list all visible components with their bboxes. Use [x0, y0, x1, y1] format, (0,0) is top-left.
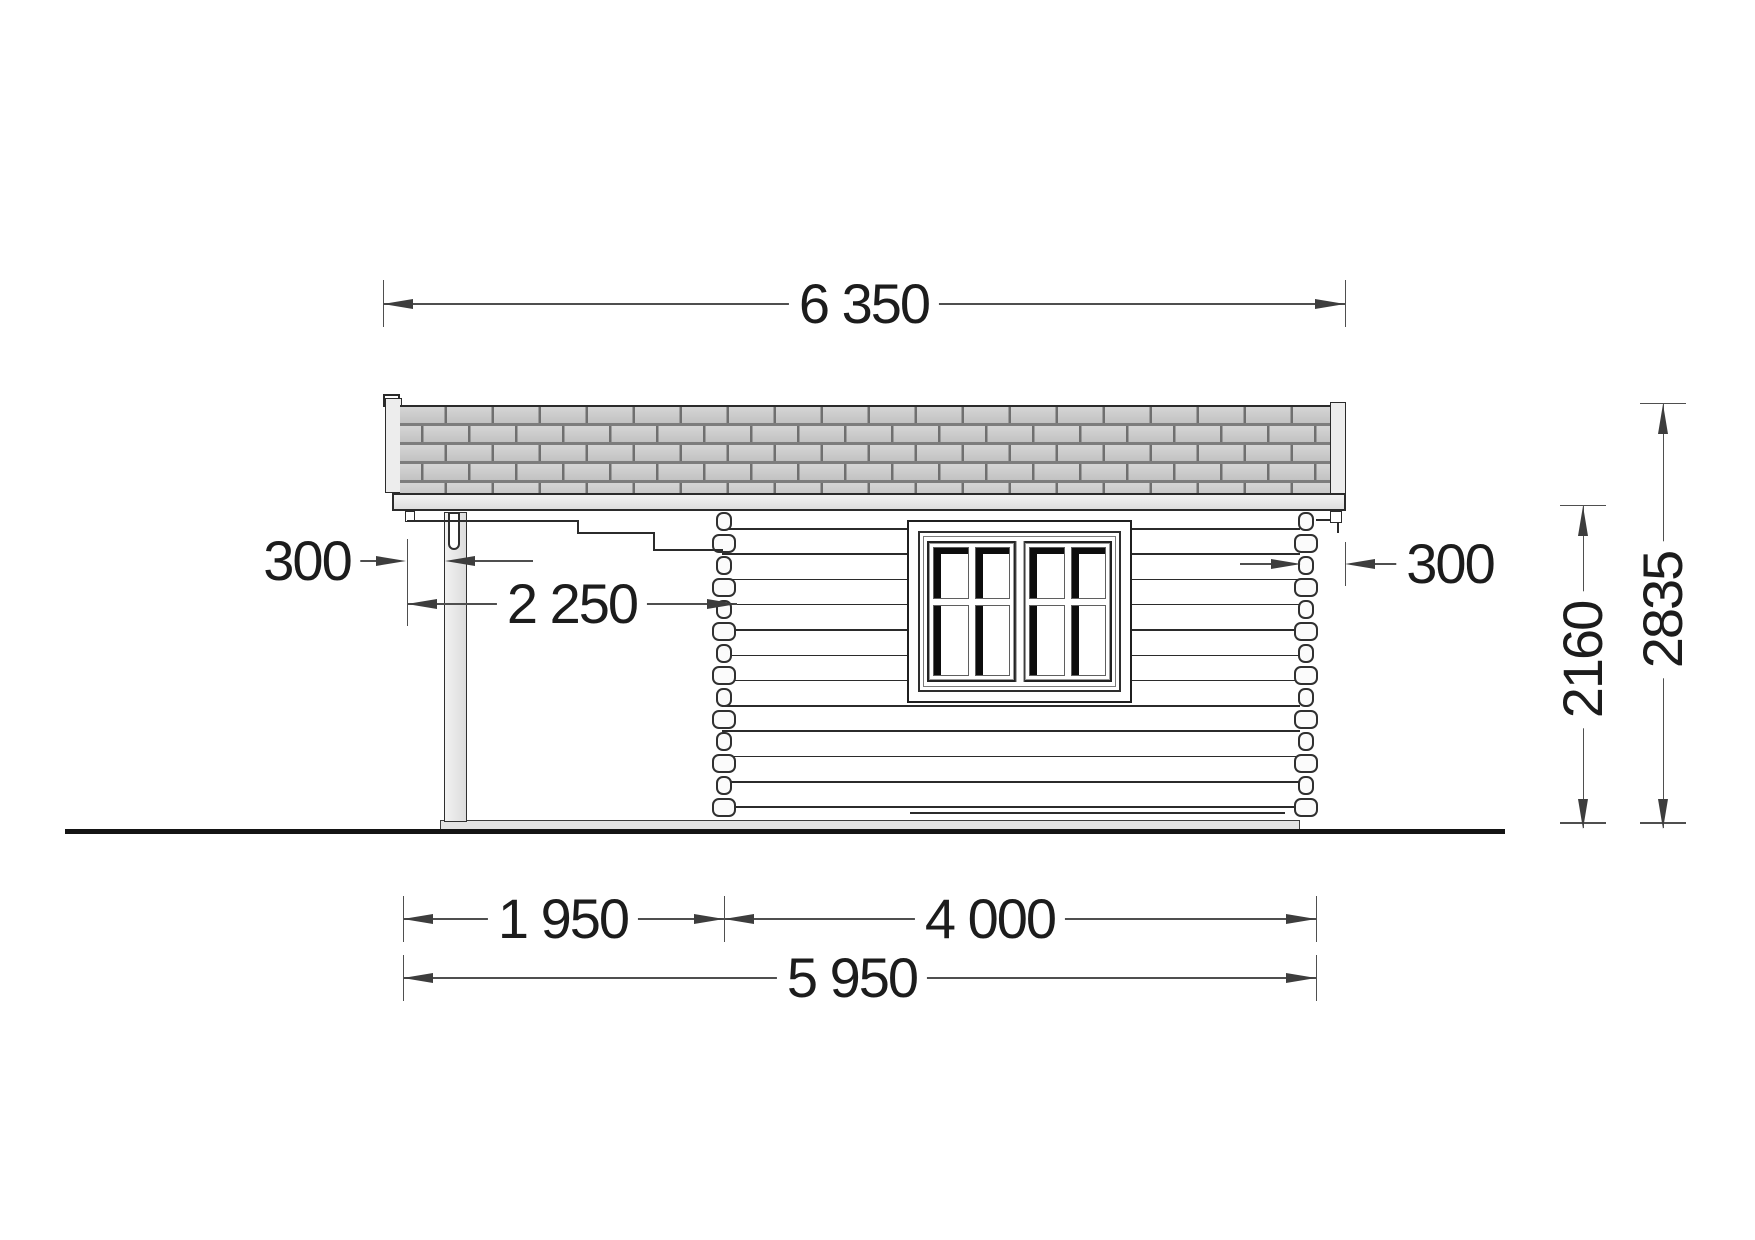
dim-label-canopy-depth: 2 250	[497, 576, 647, 632]
log-end	[716, 776, 732, 795]
log-end	[1294, 622, 1318, 641]
dim-arrow	[694, 914, 724, 924]
dim-label-wall-height: 2160	[1555, 592, 1611, 729]
siding-line	[722, 806, 1300, 808]
dim-label-terrace-width: 1 950	[488, 891, 638, 947]
log-end	[1298, 600, 1314, 619]
dim-label-overhang-left: 300	[253, 533, 360, 589]
log-end	[712, 754, 736, 773]
dim-arrow	[407, 599, 437, 609]
dim-line-overhang-right	[1240, 563, 1272, 565]
window-pane	[976, 606, 1010, 675]
shingle-row	[400, 445, 1330, 464]
siding-line	[722, 781, 1300, 783]
dim-arrow	[1286, 973, 1316, 983]
log-end	[712, 710, 736, 729]
dim-arrow	[383, 299, 413, 309]
shingle-row	[400, 407, 1330, 426]
log-end	[716, 644, 732, 663]
log-end	[1294, 666, 1318, 685]
log-end	[716, 688, 732, 707]
dim-label-total-height: 2835	[1635, 542, 1691, 679]
shingle-row	[400, 426, 1330, 445]
log-end	[1298, 688, 1314, 707]
shingle-row	[400, 483, 1330, 493]
window-pane	[934, 606, 968, 675]
log-end	[1298, 776, 1314, 795]
dim-arrow	[376, 556, 406, 566]
elevation-sheet: 6 350 300 300 2 250 1 950 4 000 5 950 21…	[0, 0, 1755, 1240]
log-end	[1294, 754, 1318, 773]
log-end	[712, 798, 736, 817]
roof-shingles	[400, 405, 1330, 493]
log-end	[1294, 534, 1318, 553]
post-anchor-bracket	[448, 512, 460, 550]
dim-arrow	[1658, 404, 1668, 434]
dim-arrow	[724, 914, 754, 924]
log-end	[712, 666, 736, 685]
log-end	[1298, 644, 1314, 663]
log-end	[716, 556, 732, 575]
log-end	[716, 512, 732, 531]
dim-label-cabin-width: 4 000	[915, 891, 1065, 947]
canopy-log-step-line	[407, 520, 579, 522]
log-end	[712, 578, 736, 597]
window-center-mullion	[1015, 541, 1024, 682]
dim-arrow	[1578, 506, 1588, 536]
window-pane	[1030, 606, 1064, 675]
window-pane	[1072, 606, 1106, 675]
window	[907, 520, 1132, 703]
dim-arrow	[1315, 299, 1345, 309]
dim-arrow	[1271, 559, 1301, 569]
dim-tick	[407, 539, 409, 583]
log-end	[712, 622, 736, 641]
fascia-board	[392, 493, 1346, 511]
siding-line	[722, 730, 1300, 732]
dim-label-overhang-right: 300	[1396, 536, 1503, 592]
dim-arrow	[1578, 799, 1588, 829]
siding-line	[722, 705, 1300, 707]
dim-label-base-total: 5 950	[777, 950, 927, 1006]
dim-arrow	[1345, 559, 1375, 569]
window-frame	[918, 531, 1121, 692]
ground-line	[65, 829, 1505, 834]
window-sash-right	[1023, 541, 1112, 682]
corner-log-ends-left	[709, 512, 739, 822]
canopy-log-step-line	[577, 532, 655, 534]
log-end	[1294, 798, 1318, 817]
window-pane	[976, 548, 1010, 598]
window-pane	[1030, 548, 1064, 598]
dim-arrow	[403, 914, 433, 924]
siding-line	[722, 756, 1300, 758]
window-pane	[934, 548, 968, 598]
dim-arrow	[403, 973, 433, 983]
dim-arrow	[707, 599, 737, 609]
window-pane	[1072, 548, 1106, 598]
shingle-row	[400, 464, 1330, 483]
log-end	[1294, 578, 1318, 597]
log-end	[716, 732, 732, 751]
wall-base-shadow-line	[910, 812, 1285, 814]
canopy-log-step-line	[653, 549, 723, 551]
log-end	[1294, 710, 1318, 729]
eave-bracket	[1330, 511, 1342, 523]
dim-arrow	[1286, 914, 1316, 924]
log-end	[1298, 732, 1314, 751]
dim-label-roof-length: 6 350	[789, 276, 939, 332]
log-end	[1298, 512, 1314, 531]
dim-line-overhang-left-tail	[475, 560, 533, 562]
dim-arrow	[1658, 799, 1668, 829]
roof-rake-right	[1330, 402, 1346, 497]
window-sash-left	[927, 541, 1016, 682]
dim-arrow	[445, 556, 475, 566]
